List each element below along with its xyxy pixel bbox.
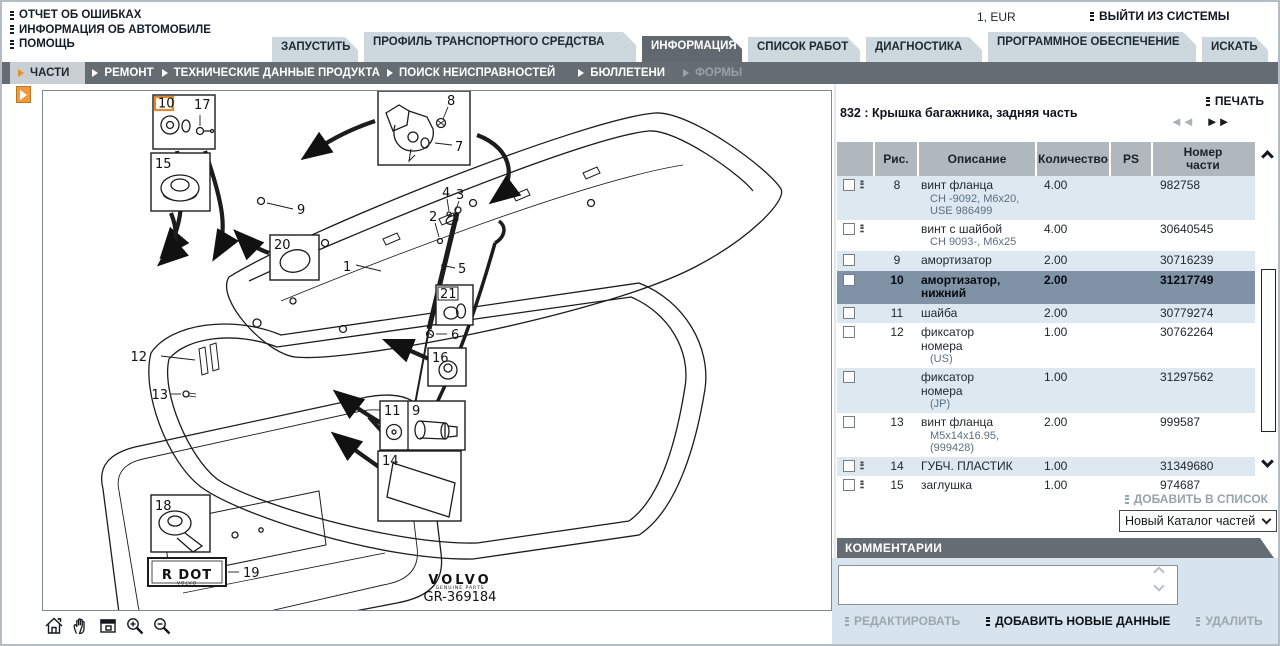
tab-2[interactable]: ИНФОРМАЦИЯ bbox=[642, 36, 742, 62]
callout-15: 15 bbox=[155, 157, 172, 172]
cell-figure: 12 bbox=[875, 325, 919, 340]
logout-label: ВЫЙТИ ИЗ СИСТЕМЫ bbox=[1099, 9, 1230, 23]
list-icon bbox=[1090, 12, 1094, 21]
list-icon bbox=[10, 11, 14, 20]
cell-figure: 9 bbox=[875, 253, 919, 268]
cell-description: амортизатор, нижний bbox=[919, 273, 1037, 301]
callout-6: 6 bbox=[451, 328, 459, 343]
parts-table: Рис.ОписаниеКоличествоPSНомер части 8 ви… bbox=[837, 142, 1255, 494]
scroll-down-icon[interactable] bbox=[1153, 580, 1164, 591]
column-header-4: PS bbox=[1111, 142, 1153, 176]
currency-indicator: 1, EUR bbox=[977, 10, 1016, 24]
subnav-item-2[interactable]: ТЕХНИЧЕСКИЕ ДАННЫЕ ПРОДУКТА bbox=[162, 67, 380, 79]
table-row[interactable]: 12 фиксатор номера(US) 1.00 30762264 bbox=[837, 323, 1255, 368]
cell-quantity: 2.00 bbox=[1037, 415, 1111, 430]
tab-3[interactable]: СПИСОК РАБОТ bbox=[748, 37, 860, 62]
cell-part-number: 30640545 bbox=[1153, 222, 1253, 237]
print-label: ПЕЧАТЬ bbox=[1215, 94, 1264, 108]
table-row[interactable]: 8 винт фланцаCH -9092, M6x20, USE 986499… bbox=[837, 176, 1255, 220]
cell-description: амортизатор bbox=[919, 253, 1037, 268]
note-icon bbox=[860, 181, 863, 189]
callout-14: 14 bbox=[382, 454, 399, 469]
column-header-3: Количество bbox=[1037, 142, 1111, 176]
cell-ps bbox=[1111, 370, 1153, 371]
cell-ps bbox=[1111, 222, 1153, 223]
cell-figure bbox=[875, 370, 919, 371]
cell-description: ГУБЧ. ПЛАСТИК bbox=[919, 459, 1037, 474]
note-icon bbox=[860, 224, 863, 232]
subnav-item-5: ФОРМЫ bbox=[683, 67, 742, 79]
callout-10-highlighted: 10 bbox=[158, 97, 175, 112]
table-row[interactable]: 10 амортизатор, нижний 2.00 31217749 bbox=[837, 271, 1255, 304]
table-scroll-up-icon[interactable] bbox=[1261, 150, 1274, 163]
list-icon bbox=[10, 25, 14, 34]
catalog-select[interactable]: Новый Каталог частей bbox=[1119, 510, 1277, 532]
zoom-in-icon[interactable] bbox=[125, 616, 145, 636]
cell-part-number: 31349680 bbox=[1153, 459, 1253, 474]
cell-part-number: 999587 bbox=[1153, 415, 1253, 430]
cell-quantity: 1.00 bbox=[1037, 325, 1111, 340]
cell-ps bbox=[1111, 273, 1153, 274]
header-link-1[interactable]: ИНФОРМАЦИЯ ОБ АВТОМОБИЛЕ bbox=[10, 23, 211, 38]
cell-ps bbox=[1111, 178, 1153, 179]
header-links: ОТЧЕТ ОБ ОШИБКАХ ИНФОРМАЦИЯ ОБ АВТОМОБИЛ… bbox=[10, 8, 211, 52]
tab-6[interactable]: ИСКАТЬ bbox=[1202, 37, 1268, 62]
column-header-0 bbox=[837, 142, 875, 176]
callout-5: 5 bbox=[458, 262, 466, 277]
pager-prev-icon: ◄◄ bbox=[1170, 114, 1194, 129]
row-checkbox[interactable] bbox=[843, 460, 855, 472]
sub-navigation: ЧАСТИ РЕМОНТ ТЕХНИЧЕСКИЕ ДАННЫЕ ПРОДУКТА… bbox=[2, 62, 1278, 84]
column-header-2: Описание bbox=[919, 142, 1037, 176]
list-icon bbox=[1196, 617, 1200, 626]
cell-quantity: 2.00 bbox=[1037, 306, 1111, 321]
cell-description: фиксатор номера(US) bbox=[919, 325, 1037, 365]
list-icon bbox=[1125, 495, 1129, 504]
cell-part-number: 982758 bbox=[1153, 178, 1253, 193]
table-scroll-down-icon[interactable] bbox=[1261, 455, 1274, 468]
callout-9: 9 bbox=[297, 203, 305, 218]
column-header-1: Рис. bbox=[875, 142, 919, 176]
panel-expand-toggle[interactable] bbox=[16, 86, 31, 103]
tab-0[interactable]: ЗАПУСТИТЬ bbox=[272, 37, 358, 62]
parts-table-rows: 8 винт фланцаCH -9092, M6x20, USE 986499… bbox=[837, 176, 1255, 494]
scroll-up-icon[interactable] bbox=[1153, 566, 1164, 577]
pan-hand-icon[interactable] bbox=[71, 616, 91, 636]
cell-quantity: 4.00 bbox=[1037, 178, 1111, 193]
table-row[interactable]: 13 винт фланцаM5x14x16.95, (999428) 2.00… bbox=[837, 413, 1255, 457]
arrow-right-icon bbox=[387, 69, 393, 77]
cell-part-number: 974687 bbox=[1153, 478, 1253, 493]
row-checkbox[interactable] bbox=[843, 479, 855, 491]
cell-part-number: 31217749 bbox=[1153, 273, 1253, 288]
cell-part-number: 30779274 bbox=[1153, 306, 1253, 321]
cell-figure: 13 bbox=[875, 415, 919, 430]
callout-4: 4 bbox=[442, 186, 450, 201]
right-arrow-icon bbox=[20, 90, 27, 100]
arrow-right-icon bbox=[92, 69, 98, 77]
comments-header: КОММЕНТАРИИ bbox=[837, 538, 1274, 558]
cell-ps bbox=[1111, 253, 1153, 254]
action-buttons: РЕДАКТИРОВАТЬ ДОБАВИТЬ НОВЫЕ ДАННЫЕ УДАЛ… bbox=[845, 614, 1263, 628]
catalog-select-value: Новый Каталог частей bbox=[1125, 514, 1255, 528]
subnav-item-3[interactable]: ПОИСК НЕИСПРАВНОСТЕЙ bbox=[387, 67, 555, 79]
callout-1: 1 bbox=[343, 260, 351, 275]
header-link-0[interactable]: ОТЧЕТ ОБ ОШИБКАХ bbox=[10, 8, 211, 23]
header-link-2[interactable]: ПОМОЩЬ bbox=[10, 37, 211, 52]
cell-ps bbox=[1111, 325, 1153, 326]
pager-next-icon[interactable]: ►► bbox=[1206, 114, 1230, 129]
cell-quantity: 1.00 bbox=[1037, 459, 1111, 474]
chevron-down-icon bbox=[1262, 515, 1272, 525]
subnav-item-0[interactable]: ЧАСТИ bbox=[10, 62, 85, 84]
cell-figure bbox=[875, 222, 919, 223]
cell-figure: 10 bbox=[875, 273, 919, 288]
note-icon bbox=[860, 481, 863, 489]
tab-5[interactable]: ПРОГРАММНОЕ ОБЕСПЕЧЕНИЕ bbox=[988, 32, 1196, 62]
cell-figure: 14 bbox=[875, 459, 919, 474]
cell-quantity: 1.00 bbox=[1037, 478, 1111, 493]
action-button-2: УДАЛИТЬ bbox=[1196, 614, 1262, 628]
section-title: 832 : Крышка багажника, задняя часть bbox=[840, 106, 1078, 120]
cell-quantity: 4.00 bbox=[1037, 222, 1111, 237]
figure-pager: ◄◄►► bbox=[1170, 114, 1229, 129]
cell-quantity: 1.00 bbox=[1037, 370, 1111, 385]
action-button-1[interactable]: ДОБАВИТЬ НОВЫЕ ДАННЫЕ bbox=[986, 614, 1170, 628]
cell-quantity: 2.00 bbox=[1037, 253, 1111, 268]
arrow-right-icon bbox=[162, 69, 168, 77]
arrow-right-icon bbox=[683, 69, 689, 77]
cell-ps bbox=[1111, 306, 1153, 307]
callout-2: 2 bbox=[429, 210, 437, 225]
callout-13: 13 bbox=[151, 388, 168, 403]
zoom-out-icon[interactable] bbox=[152, 616, 172, 636]
row-checkbox[interactable] bbox=[843, 371, 855, 383]
callout-9b: 9 bbox=[412, 404, 420, 419]
callout-7: 7 bbox=[455, 140, 463, 155]
callout-8: 8 bbox=[447, 94, 455, 109]
tailgate-exploded-diagram: 10 17 15 8 7 9 20 1 2 4 3 5 21 6 16 11 9… bbox=[43, 91, 831, 610]
add-to-list-link: ДОБАВИТЬ В СПИСОК bbox=[1125, 492, 1268, 506]
cell-figure: 8 bbox=[875, 178, 919, 193]
cell-description: заглушка bbox=[919, 478, 1037, 493]
cell-figure: 15 bbox=[875, 478, 919, 493]
callout-12: 12 bbox=[130, 350, 147, 365]
callout-3: 3 bbox=[456, 188, 464, 203]
row-checkbox[interactable] bbox=[843, 254, 855, 266]
cell-ps bbox=[1111, 478, 1153, 479]
fit-window-icon[interactable] bbox=[98, 616, 118, 636]
callout-20: 20 bbox=[274, 238, 291, 253]
row-checkbox[interactable] bbox=[843, 416, 855, 428]
subnav-item-4[interactable]: БЮЛЛЕТЕНИ bbox=[578, 67, 665, 79]
table-row[interactable]: винт с шайбойCH 9093-, M6x25 4.00 306405… bbox=[837, 220, 1255, 252]
home-icon[interactable] bbox=[44, 616, 64, 636]
cell-ps bbox=[1111, 415, 1153, 416]
note-icon bbox=[860, 461, 863, 469]
row-checkbox[interactable] bbox=[843, 307, 855, 319]
add-to-list-label: ДОБАВИТЬ В СПИСОК bbox=[1134, 492, 1268, 506]
main-tabs: ЗАПУСТИТЬПРОФИЛЬ ТРАНСПОРТНОГО СРЕДСТВАИ… bbox=[272, 32, 1276, 62]
list-icon bbox=[845, 617, 849, 626]
row-checkbox[interactable] bbox=[843, 326, 855, 338]
vida-parts-page: ОТЧЕТ ОБ ОШИБКАХ ИНФОРМАЦИЯ ОБ АВТОМОБИЛ… bbox=[0, 0, 1280, 646]
column-header-5: Номер части bbox=[1153, 142, 1253, 176]
cell-figure: 11 bbox=[875, 306, 919, 321]
cell-description: шайба bbox=[919, 306, 1037, 321]
action-button-0: РЕДАКТИРОВАТЬ bbox=[845, 614, 960, 628]
cell-part-number: 31297562 bbox=[1153, 370, 1253, 385]
parts-list-panel: ПЕЧАТЬ 832 : Крышка багажника, задняя ча… bbox=[837, 90, 1280, 646]
callout-11: 11 bbox=[384, 404, 401, 419]
tab-4[interactable]: ДИАГНОСТИКА bbox=[866, 37, 982, 62]
tab-1[interactable]: ПРОФИЛЬ ТРАНСПОРТНОГО СРЕДСТВА bbox=[364, 32, 636, 62]
print-link[interactable]: ПЕЧАТЬ bbox=[1206, 94, 1264, 108]
callout-18: 18 bbox=[155, 499, 172, 514]
callout-16: 16 bbox=[432, 351, 449, 366]
table-row[interactable]: 9 амортизатор 2.00 30716239 bbox=[837, 251, 1255, 271]
parts-diagram-panel: 10 17 15 8 7 9 20 1 2 4 3 5 21 6 16 11 9… bbox=[42, 90, 832, 611]
table-scrollbar-thumb[interactable] bbox=[1261, 269, 1276, 432]
cell-ps bbox=[1111, 459, 1153, 460]
cell-description: винт с шайбойCH 9093-, M6x25 bbox=[919, 222, 1037, 249]
cell-description: винт фланцаM5x14x16.95, (999428) bbox=[919, 415, 1037, 454]
cell-quantity: 2.00 bbox=[1037, 273, 1111, 288]
diagram-toolbar bbox=[44, 616, 172, 636]
list-icon bbox=[1206, 97, 1210, 106]
diagram-reference-number: GR-369184 bbox=[424, 590, 497, 605]
logout-link[interactable]: ВЫЙТИ ИЗ СИСТЕМЫ bbox=[1090, 9, 1230, 23]
row-checkbox[interactable] bbox=[843, 179, 855, 191]
row-checkbox[interactable] bbox=[843, 274, 855, 286]
table-row[interactable]: 11 шайба 2.00 30779274 bbox=[837, 304, 1255, 324]
table-row[interactable]: 14 ГУБЧ. ПЛАСТИК 1.00 31349680 bbox=[837, 457, 1255, 477]
list-icon bbox=[10, 40, 14, 49]
parts-table-header: Рис.ОписаниеКоличествоPSНомер части bbox=[837, 142, 1255, 176]
cell-description: винт фланцаCH -9092, M6x20, USE 986499 bbox=[919, 178, 1037, 217]
subnav-item-1[interactable]: РЕМОНТ bbox=[92, 67, 153, 79]
list-icon bbox=[986, 617, 990, 626]
cell-part-number: 30762264 bbox=[1153, 325, 1253, 340]
table-row[interactable]: фиксатор номера(JP) 1.00 31297562 bbox=[837, 368, 1255, 413]
rdot-volvo-label: VOLVO bbox=[177, 581, 197, 587]
comment-textarea[interactable] bbox=[838, 565, 1178, 605]
cell-part-number: 30716239 bbox=[1153, 253, 1253, 268]
callout-21: 21 bbox=[440, 287, 457, 302]
callout-17: 17 bbox=[194, 98, 211, 113]
cell-description: фиксатор номера(JP) bbox=[919, 370, 1037, 410]
arrow-right-icon bbox=[18, 69, 24, 77]
comments-title: КОММЕНТАРИИ bbox=[845, 541, 942, 555]
comment-scroll-arrows bbox=[1155, 568, 1163, 590]
row-checkbox[interactable] bbox=[843, 223, 855, 235]
callout-19: 19 bbox=[243, 566, 260, 581]
arrow-right-icon bbox=[578, 69, 584, 77]
